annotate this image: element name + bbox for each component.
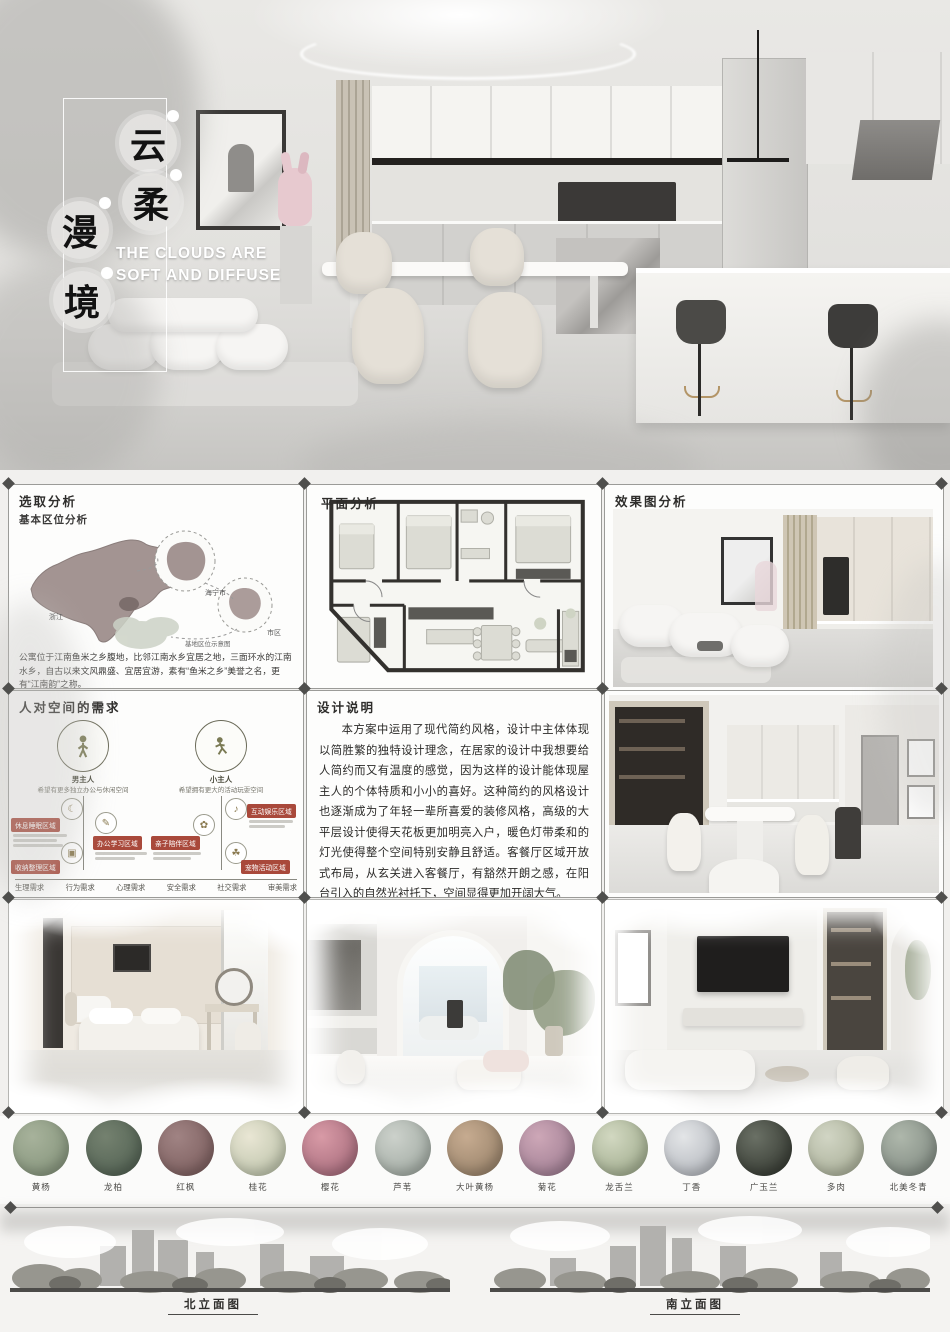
plant-photo <box>736 1120 792 1176</box>
plant-name: 樱花 <box>299 1181 361 1193</box>
plant-name: 芦苇 <box>372 1181 434 1193</box>
plant-name: 桂花 <box>227 1181 289 1193</box>
pink-bunny-sculpture <box>278 168 312 226</box>
panel-design-statement: 设计说明 本方案中运用了现代简约风格，设计中主体体现以简胜繁的独特设计理念，在居… <box>306 690 602 898</box>
plant-item: 红枫 <box>155 1120 217 1193</box>
dining-scene <box>609 695 939 893</box>
panel-render-analysis: 效果图分析 <box>604 484 944 697</box>
plant-name: 丁香 <box>661 1181 723 1193</box>
title-english: THE CLOUDS ARE SOFT AND DIFFUSE <box>116 243 306 288</box>
footer-label: 生理需求 <box>15 883 44 893</box>
needs-tag: 宠物活动区域 <box>241 860 290 874</box>
north-elevation-label: 北立面图 <box>168 1296 258 1315</box>
plan-analysis-title: 平面分析 <box>321 493 379 512</box>
needs-footer-labels: 生理需求 行为需求 心理需求 安全需求 社交需求 审美需求 <box>15 879 297 893</box>
bar-stool <box>676 300 726 344</box>
plant-photo <box>230 1120 286 1176</box>
panel-space-needs: 人对空间的需求 男主人 希望有更多独立办公与休闲空间 ☾ 休息睡眠区域 ✎ 办公… <box>8 690 304 898</box>
play-icon: ♪ <box>225 798 247 820</box>
plant-item: 龙柏 <box>83 1120 145 1193</box>
plant-photo <box>447 1120 503 1176</box>
south-elevation-label: 南立面图 <box>650 1296 740 1315</box>
panel-plan-analysis: 平面分析 <box>306 484 602 689</box>
plant-item: 黄杨 <box>10 1120 72 1193</box>
plant-item: 菊花 <box>516 1120 578 1193</box>
plant-photo <box>302 1120 358 1176</box>
footer-label: 心理需求 <box>116 883 145 893</box>
upper-cabinets <box>372 86 724 158</box>
title-english-line1: THE CLOUDS ARE <box>116 243 306 265</box>
site-analysis-subtitle: 基本区位分析 <box>19 512 303 527</box>
person-child-desc: 希望拥有更大的活动玩耍空间 <box>147 784 295 794</box>
plant-name: 龙柏 <box>83 1181 145 1193</box>
floor-plan <box>307 485 599 685</box>
north-elevation-drawing <box>10 1216 450 1294</box>
needs-tag: 休息睡眠区域 <box>11 818 60 832</box>
plant-photo <box>592 1120 648 1176</box>
title-english-line2: SOFT AND DIFFUSE <box>116 265 306 287</box>
footer-label: 审美需求 <box>268 883 297 893</box>
region-map: 浙江 海宁市 市区 基地区位示意图 <box>9 527 297 649</box>
dining-chair <box>470 228 524 286</box>
elevation-strip: 北立面图 南立面图 <box>0 1204 950 1332</box>
plant-photo <box>13 1120 69 1176</box>
plant-name: 红枫 <box>155 1181 217 1193</box>
under-cabinet-strip <box>372 158 724 165</box>
bedroom-scene <box>9 900 303 1113</box>
south-elevation-drawing <box>490 1216 930 1294</box>
coffee-appliance-block <box>558 182 676 226</box>
site-analysis-title: 选取分析 <box>19 491 303 510</box>
map-label-district: 市区 <box>267 628 281 637</box>
dining-chair <box>352 288 424 384</box>
plant-item: 芦苇 <box>372 1120 434 1193</box>
bar-island <box>636 268 950 423</box>
plant-name: 广玉兰 <box>733 1181 795 1193</box>
plant-name: 龙舌兰 <box>589 1181 651 1193</box>
map-label-site: 基地区位示意图 <box>185 639 231 648</box>
plant-photo <box>519 1120 575 1176</box>
needs-diagram: 男主人 希望有更多独立办公与休闲空间 ☾ 休息睡眠区域 ✎ 办公学习区域 ▣ 收… <box>9 718 303 876</box>
panel-site-analysis: 选取分析 基本区位分析 浙江 海宁市 市区 基地区位示意图 公寓位于江南鱼米之乡… <box>8 484 304 689</box>
plant-photo <box>808 1120 864 1176</box>
map-label-city: 海宁市 <box>205 588 226 597</box>
footer-label: 安全需求 <box>167 883 196 893</box>
table-leg <box>590 276 598 328</box>
person-child-icon <box>195 720 247 772</box>
design-statement-body: 本方案中运用了现代简约风格，设计中主体体现以简胜繁的独特设计理念，在居家的设计中… <box>319 720 589 898</box>
plant-item: 大叶黄杨 <box>444 1120 506 1193</box>
hero-banner: 云 柔 漫 境 THE CLOUDS ARE SOFT AND DIFFUSE <box>0 0 950 470</box>
plant-photo <box>881 1120 937 1176</box>
pendant-light-bar <box>727 158 789 162</box>
site-caption: 公寓位于江南鱼米之乡腹地，比邻江南水乡宜居之地，三面环水的江南水乡，自古以来文风… <box>19 651 293 689</box>
sleep-icon: ☾ <box>61 798 83 820</box>
footer-label: 社交需求 <box>217 883 246 893</box>
plant-item: 北美冬青 <box>878 1120 940 1193</box>
title-char-man: 漫 <box>51 201 109 259</box>
space-needs-title: 人对空间的需求 <box>19 697 303 716</box>
tv-living-scene <box>605 900 943 1113</box>
title-char-yun: 云 <box>119 114 177 172</box>
plant-photo <box>375 1120 431 1176</box>
arch-living-scene <box>307 900 601 1113</box>
design-statement-title: 设计说明 <box>317 697 601 716</box>
plant-name: 大叶黄杨 <box>444 1181 506 1193</box>
plant-item: 龙舌兰 <box>589 1120 651 1193</box>
plant-name: 黄杨 <box>10 1181 72 1193</box>
panel-arch-living-render <box>306 899 602 1114</box>
bar-stool <box>828 304 878 348</box>
person-adult-desc: 希望有更多独立办公与休闲空间 <box>9 784 157 794</box>
plant-item: 多肉 <box>805 1120 867 1193</box>
dining-chair <box>336 232 392 294</box>
map-label-province: 浙江 <box>49 612 63 621</box>
needs-tag: 互动娱乐区域 <box>247 804 296 818</box>
plant-name: 多肉 <box>805 1181 867 1193</box>
title-char-rou: 柔 <box>122 173 180 231</box>
range-hood <box>852 120 940 180</box>
storage-icon: ▣ <box>61 842 83 864</box>
plant-name: 菊花 <box>516 1181 578 1193</box>
plant-palette-row: 黄杨 龙柏 红枫 桂花 樱花 芦苇 大叶黄杨 菊花 龙舌兰 丁香 广玉兰 多肉 … <box>0 1116 950 1208</box>
plant-item: 桂花 <box>227 1120 289 1193</box>
panel-dining-render <box>604 690 944 898</box>
needs-tag: 办公学习区域 <box>93 836 142 850</box>
render-analysis-title: 效果图分析 <box>615 491 943 510</box>
plant-photo <box>664 1120 720 1176</box>
needs-tag: 亲子陪伴区域 <box>151 836 200 850</box>
plant-item: 广玉兰 <box>733 1120 795 1193</box>
needs-tag: 收纳整理区域 <box>11 860 60 874</box>
family-icon: ✿ <box>193 814 215 836</box>
cove-lighting <box>300 28 636 80</box>
panel-tv-living-render <box>604 899 944 1114</box>
plant-name: 北美冬青 <box>878 1181 940 1193</box>
person-adult-icon <box>57 720 109 772</box>
dining-chair <box>468 292 542 388</box>
plant-item: 丁香 <box>661 1120 723 1193</box>
plant-photo <box>158 1120 214 1176</box>
footer-label: 行为需求 <box>66 883 95 893</box>
pendant-light-rod <box>757 30 759 160</box>
plant-photo <box>86 1120 142 1176</box>
panel-bedroom-render <box>8 899 304 1114</box>
title-char-jing: 境 <box>53 271 111 329</box>
divider-line <box>10 1207 940 1208</box>
tall-cabinet-fridge <box>722 58 808 298</box>
plant-item: 樱花 <box>299 1120 361 1193</box>
wall-art-frame <box>196 110 286 230</box>
render-living-scene <box>613 509 933 687</box>
study-icon: ✎ <box>95 812 117 834</box>
